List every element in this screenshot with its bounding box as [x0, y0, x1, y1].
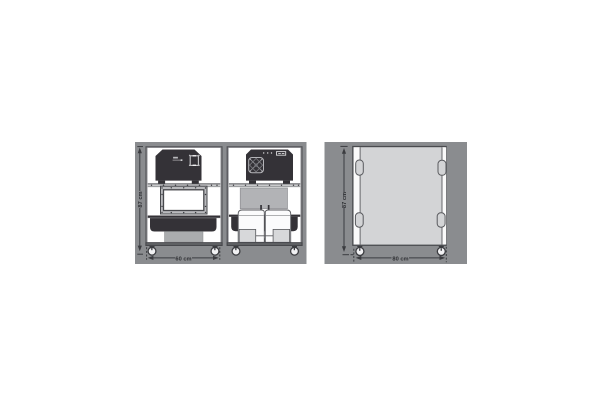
svg-text:80 cm: 80 cm	[392, 256, 408, 262]
svg-text:60 cm: 60 cm	[175, 256, 191, 262]
svg-text:87 cm: 87 cm	[138, 191, 144, 207]
svg-text:87 cm: 87 cm	[342, 192, 348, 208]
